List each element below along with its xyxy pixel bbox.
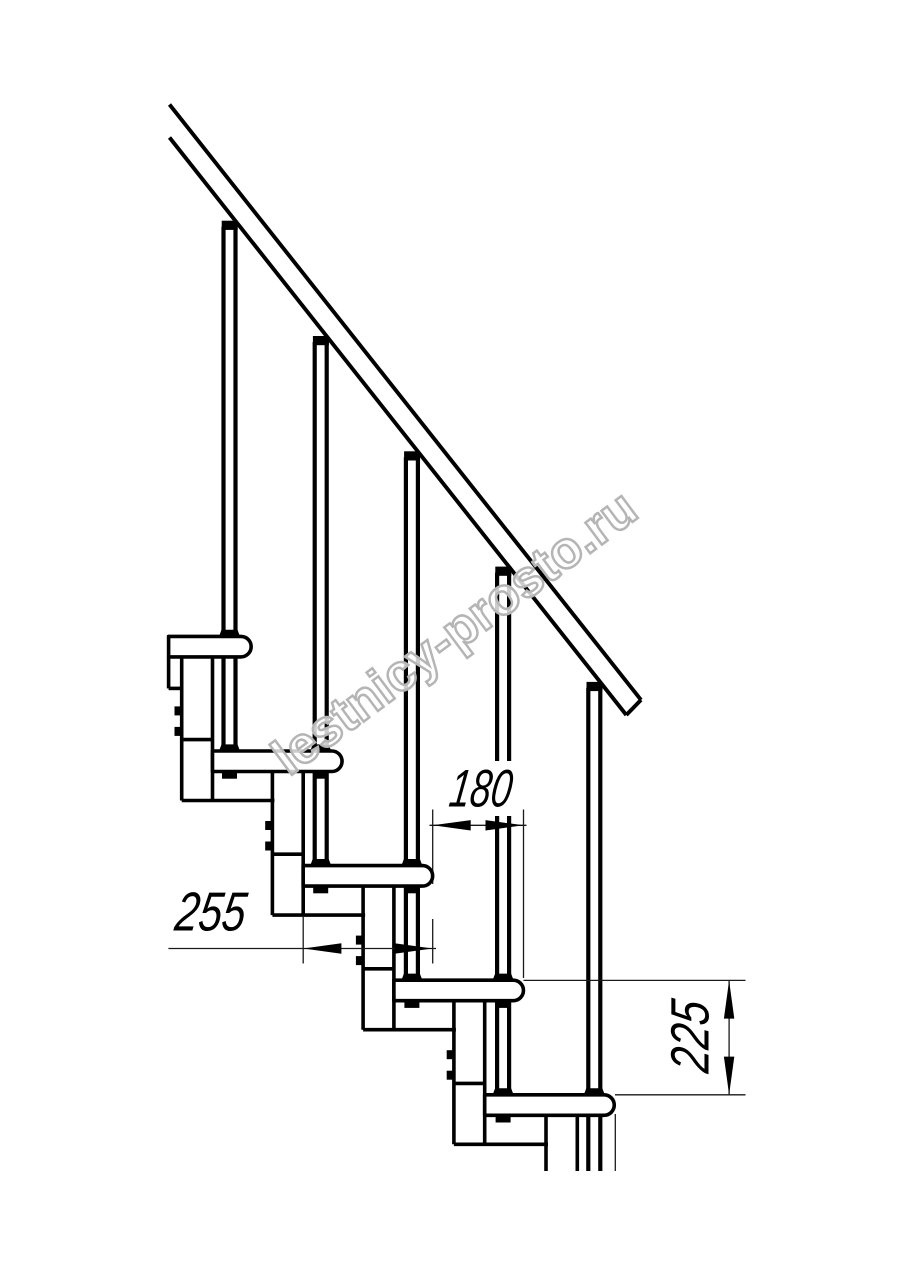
svg-text:225: 225 bbox=[661, 996, 721, 1077]
svg-text:255: 255 bbox=[171, 881, 251, 943]
svg-text:180: 180 bbox=[446, 760, 517, 819]
